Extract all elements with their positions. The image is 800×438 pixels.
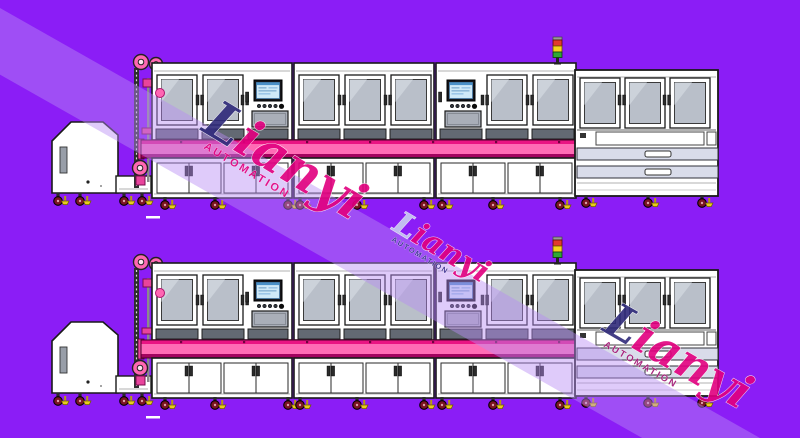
cad-drawing-viewport: Lianyi AUTOMATION Lianyi AUTOMATION Lian…: [0, 0, 800, 438]
equipment-line-drawing: Lianyi AUTOMATION Lianyi AUTOMATION Lian…: [0, 0, 800, 438]
